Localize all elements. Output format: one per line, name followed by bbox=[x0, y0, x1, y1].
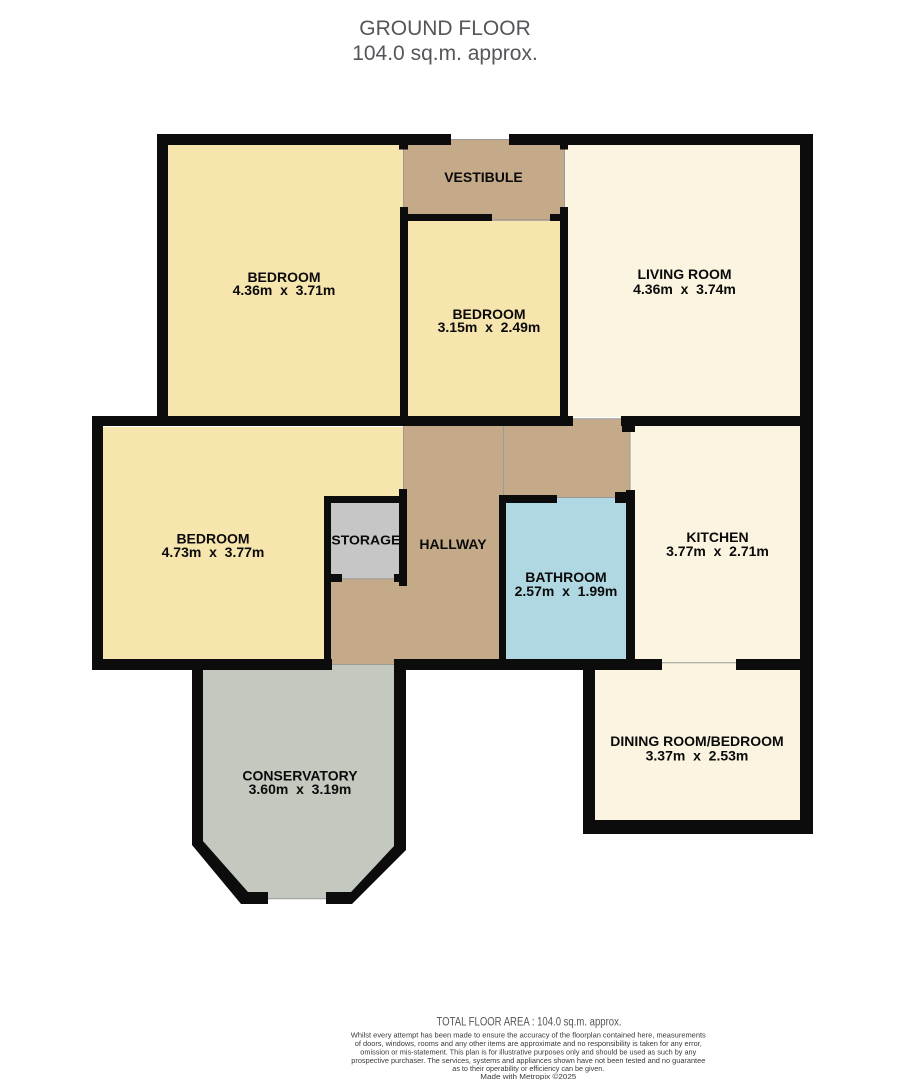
svg-text:GROUND FLOOR: GROUND FLOOR bbox=[359, 17, 531, 40]
svg-text:4.73m x 3.77m: 4.73m x 3.77m bbox=[162, 544, 265, 560]
svg-text:STORAGE: STORAGE bbox=[331, 533, 400, 548]
svg-text:4.36m x 3.71m: 4.36m x 3.71m bbox=[233, 282, 336, 298]
svg-text:VESTIBULE: VESTIBULE bbox=[444, 169, 523, 185]
svg-text:3.15m x 2.49m: 3.15m x 2.49m bbox=[438, 319, 541, 335]
svg-text:TOTAL FLOOR AREA : 104.0 sq.m.: TOTAL FLOOR AREA : 104.0 sq.m. approx. bbox=[437, 1017, 622, 1029]
svg-text:HALLWAY: HALLWAY bbox=[419, 536, 487, 552]
svg-text:2.57m x 1.99m: 2.57m x 1.99m bbox=[515, 583, 618, 599]
svg-text:4.36m x 3.74m: 4.36m x 3.74m bbox=[633, 281, 736, 297]
svg-text:3.77m x 2.71m: 3.77m x 2.71m bbox=[666, 543, 769, 559]
svg-text:Made with Metropix ©2025: Made with Metropix ©2025 bbox=[480, 1072, 576, 1080]
svg-text:3.37m x 2.53m: 3.37m x 2.53m bbox=[646, 748, 749, 764]
svg-text:3.60m x 3.19m: 3.60m x 3.19m bbox=[249, 781, 352, 797]
svg-text:LIVING ROOM: LIVING ROOM bbox=[637, 266, 731, 282]
svg-text:104.0 sq.m. approx.: 104.0 sq.m. approx. bbox=[352, 42, 538, 65]
